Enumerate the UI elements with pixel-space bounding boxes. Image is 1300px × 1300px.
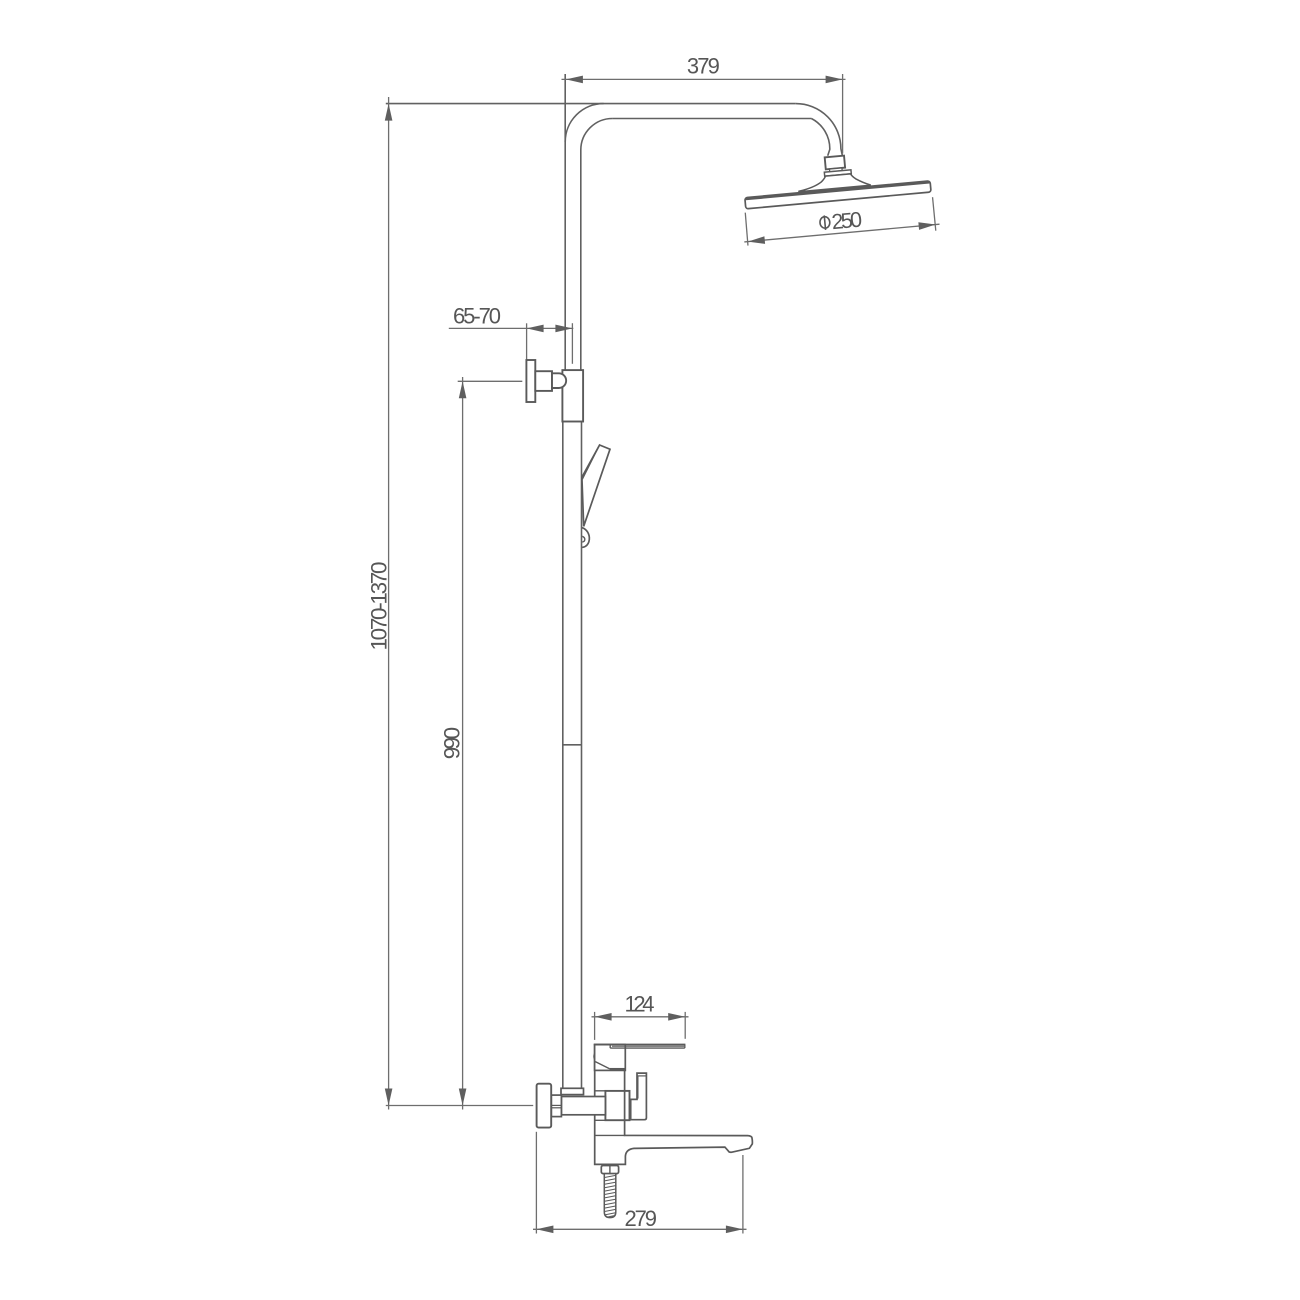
svg-text:990: 990 xyxy=(440,727,465,759)
svg-text:379: 379 xyxy=(687,54,720,79)
svg-text:65-70: 65-70 xyxy=(453,303,501,328)
svg-text:279: 279 xyxy=(624,1206,657,1231)
svg-text:250: 250 xyxy=(831,208,864,235)
svg-text:124: 124 xyxy=(625,991,655,1016)
svg-text:1070-1370: 1070-1370 xyxy=(366,562,391,651)
